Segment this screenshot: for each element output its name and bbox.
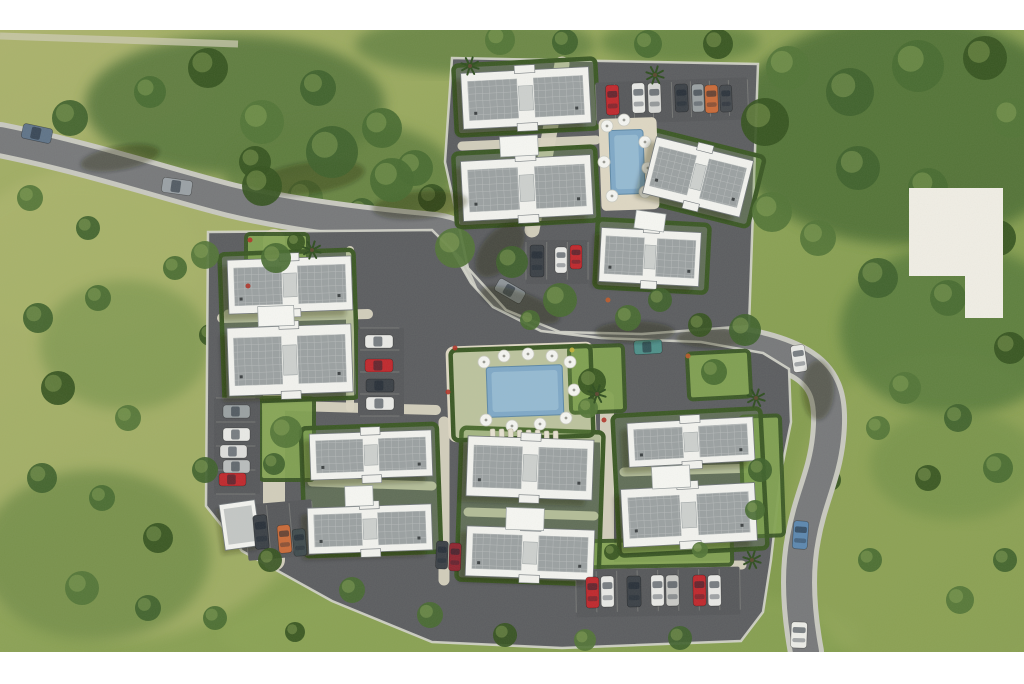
photo-grain	[0, 30, 1024, 652]
letterbox-top	[0, 0, 1024, 30]
photo-area	[0, 15, 1024, 684]
letterbox-bottom	[0, 652, 1024, 684]
texture-layer	[0, 30, 1024, 652]
site-plan-rendering	[0, 0, 1024, 684]
screenshot-root	[0, 0, 1024, 684]
